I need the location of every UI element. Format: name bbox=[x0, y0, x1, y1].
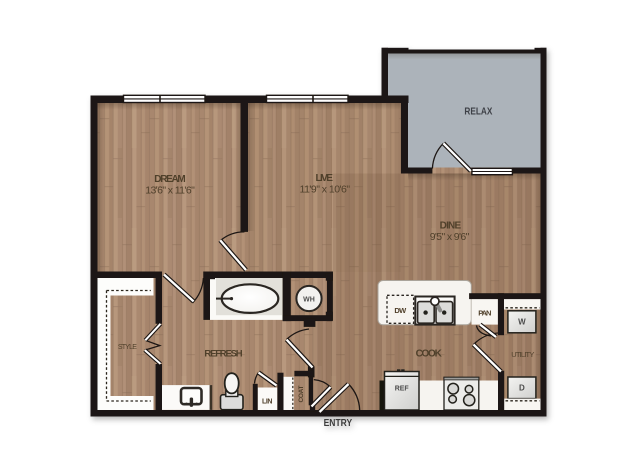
svg-text:ENTRY: ENTRY bbox=[324, 418, 353, 429]
svg-text:D: D bbox=[519, 384, 525, 393]
svg-text:REF: REF bbox=[395, 386, 410, 393]
svg-text:11'9" x 10'6": 11'9" x 10'6" bbox=[300, 183, 351, 195]
svg-text:DW: DW bbox=[394, 306, 407, 315]
svg-text:DINE: DINE bbox=[440, 221, 462, 232]
svg-text:DREAM: DREAM bbox=[154, 174, 185, 185]
svg-text:LIN: LIN bbox=[262, 398, 273, 405]
svg-text:REFRESH: REFRESH bbox=[204, 348, 242, 359]
svg-text:RELAX: RELAX bbox=[464, 105, 492, 117]
svg-text:STYLE: STYLE bbox=[118, 344, 137, 351]
svg-text:PAN: PAN bbox=[478, 308, 491, 317]
svg-text:9'5" x 9'6": 9'5" x 9'6" bbox=[430, 231, 470, 243]
svg-text:W: W bbox=[518, 318, 526, 327]
svg-text:COOK: COOK bbox=[416, 349, 443, 360]
svg-text:UTILITY: UTILITY bbox=[511, 350, 534, 359]
svg-text:13'6" x 11'6": 13'6" x 11'6" bbox=[145, 184, 195, 196]
svg-text:COAT: COAT bbox=[298, 385, 305, 402]
svg-text:WH: WH bbox=[303, 296, 315, 303]
